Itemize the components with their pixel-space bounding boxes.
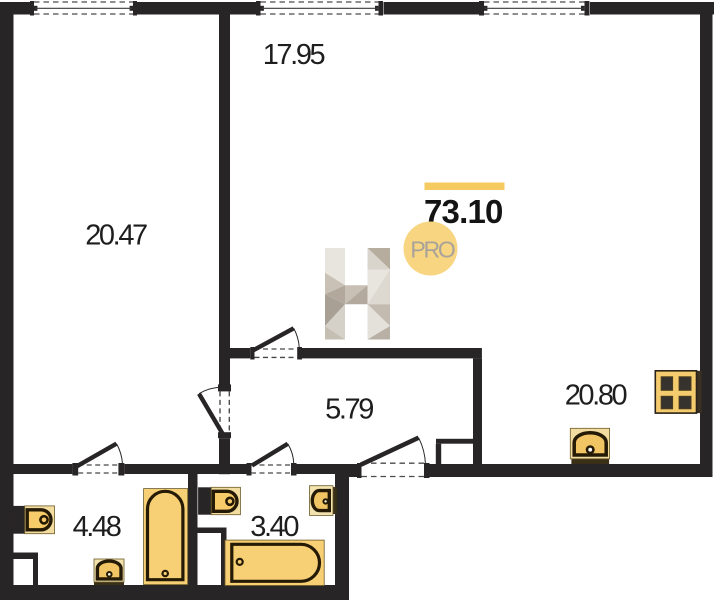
- svg-text:PRO: PRO: [410, 237, 455, 263]
- svg-text:20.47: 20.47: [85, 220, 147, 252]
- svg-text:17.95: 17.95: [263, 39, 325, 71]
- svg-text:5.79: 5.79: [325, 394, 373, 426]
- svg-text:4.48: 4.48: [73, 511, 121, 543]
- svg-text:20.80: 20.80: [565, 380, 627, 412]
- svg-text:3.40: 3.40: [250, 511, 298, 543]
